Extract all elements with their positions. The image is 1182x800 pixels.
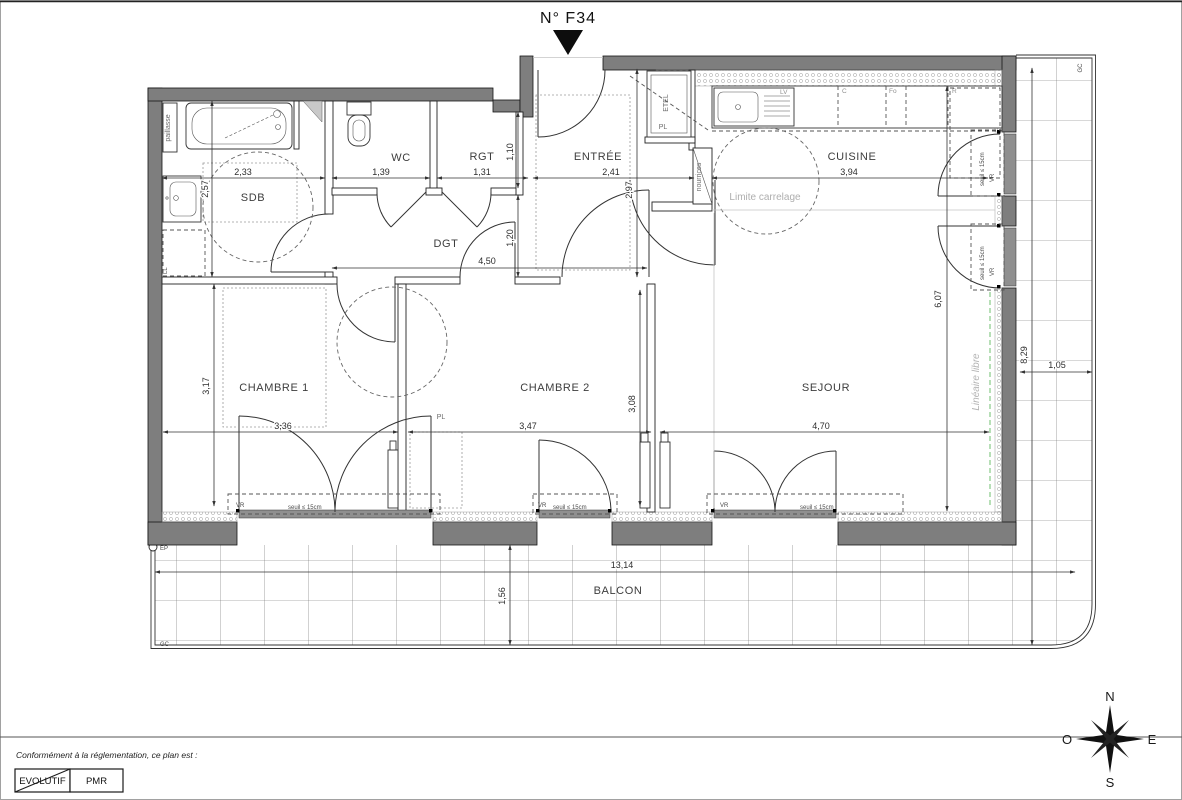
plan-title: N° F34: [540, 10, 596, 27]
washing-machine-slot: LL: [163, 230, 205, 276]
room-label-dgt: DGT: [433, 238, 458, 250]
room-label-balcon: BALCON: [594, 585, 643, 597]
dim-entree-height: 2,97: [624, 181, 634, 199]
etel-closet: ETEL: [647, 71, 691, 137]
shower-corner: [303, 101, 322, 122]
room-label-rgt: RGT: [469, 151, 494, 163]
ll-label: LL: [163, 267, 169, 274]
kitchen-fo-label: Fo: [889, 88, 897, 95]
vr-label-sejour: VR: [720, 503, 729, 509]
dim-balcon-width: 13,14: [611, 560, 634, 570]
room-labels: SDB WC RGT ENTRÉE CUISINE DGT CHAMBRE 1 …: [239, 150, 876, 394]
kitchen-counter: LV C Fo R: [712, 86, 1002, 178]
entrance-marker-icon: [553, 30, 583, 55]
dim-dgt-width: 4,50: [478, 256, 496, 266]
room-label-chambre1: CHAMBRE 1: [239, 382, 309, 394]
vr-label-cuisine: VR: [990, 173, 996, 182]
vr-label-sejour-balcony: VR: [990, 267, 996, 276]
rgt-door: [442, 192, 491, 227]
sejour-entry-door: [562, 190, 649, 277]
pl-label-entree: PL: [659, 124, 668, 131]
limite-carrelage-label: Limite carrelage: [729, 192, 801, 203]
vr-label-ch2: VR: [538, 503, 547, 509]
paillasse-label: paillasse: [165, 114, 172, 141]
fixtures: paillasse LL ETEL P: [163, 71, 1002, 508]
floor-plan-page: N° F34 EP GC GC BALCON: [0, 0, 1182, 800]
dim-sejour-width: 4,70: [812, 421, 830, 431]
dim-balcon-side-width: 1,05: [1048, 360, 1066, 370]
ep-label: EP: [160, 546, 168, 552]
compass-east-label: E: [1148, 732, 1157, 747]
radiators: [388, 433, 670, 508]
gc-label-bottom: GC: [160, 642, 170, 648]
compass-west-label: O: [1062, 732, 1072, 747]
room-label-cuisine: CUISINE: [828, 151, 877, 163]
seuil-label-cuisine: seuil ≤ 15cm: [980, 152, 986, 186]
legend-evolutif: EVOLUTIF: [19, 776, 66, 787]
room-label-wc: WC: [391, 152, 411, 164]
compass-rose: N S E O: [1062, 689, 1157, 790]
seuil-label-sejour-balcony: seuil ≤ 15cm: [980, 246, 986, 280]
seuil-label-ch2: seuil ≤ 15cm: [553, 505, 587, 511]
bathtub: [186, 103, 292, 149]
compass-north-label: N: [1105, 689, 1114, 704]
legend-pmr: PMR: [86, 776, 107, 787]
dim-dgt-height: 1,20: [505, 229, 515, 247]
vr-label-ch1: VR: [236, 503, 245, 509]
kitchen-lv-label: LV: [780, 89, 788, 96]
wc-door: [377, 192, 426, 227]
dim-chambre1-height: 3,17: [201, 377, 211, 395]
zones: PL Limite carrelage Linéaire libre VR se…: [203, 76, 1004, 514]
legend-intro: Conformément à la réglementation, ce pla…: [16, 750, 198, 760]
pmr-circle-cuisine: [713, 128, 819, 234]
dim-rgt-height: 1,10: [505, 143, 515, 161]
dim-sejour-height: 6,07: [933, 290, 943, 308]
room-label-sejour: SEJOUR: [802, 382, 850, 394]
dim-cuisine-width: 3,94: [840, 167, 858, 177]
dim-wc-width: 1,39: [372, 167, 390, 177]
gc-label-top: GC: [1078, 63, 1084, 73]
etel-label: ETEL: [663, 94, 670, 112]
toilet: [347, 102, 371, 146]
dim-balcon-depth: 1,56: [497, 587, 507, 605]
dim-chambre2-height: 3,08: [627, 395, 637, 413]
kitchen-c-label: C: [842, 88, 847, 95]
title-block: N° F34: [540, 10, 596, 55]
legend: Conformément à la réglementation, ce pla…: [15, 750, 198, 792]
kitchen-r-label: R: [952, 88, 957, 95]
paillasse-counter: paillasse: [163, 103, 177, 152]
dim-chambre2-width: 3,47: [519, 421, 537, 431]
seuil-label-sejour: seuil ≤ 15cm: [800, 505, 834, 511]
pmr-circle-sdb: [203, 152, 313, 262]
dim-sdb-height: 2,57: [200, 180, 210, 198]
entry-door: [538, 70, 605, 137]
room-label-entree: ENTRÉE: [574, 150, 622, 163]
seuil-label-ch1: seuil ≤ 15cm: [288, 505, 322, 511]
compass-south-label: S: [1106, 775, 1115, 790]
dim-rgt-width: 1,31: [473, 167, 491, 177]
dim-balcon-side-height: 8,29: [1019, 346, 1029, 364]
washbasin: [163, 176, 201, 222]
lineaire-libre-label: Linéaire libre: [971, 353, 982, 411]
room-label-chambre2: CHAMBRE 2: [520, 382, 590, 394]
dim-sdb-width: 2,33: [234, 167, 252, 177]
dim-entree-width: 2,41: [602, 167, 620, 177]
floor-plan-drawing: N° F34 EP GC GC BALCON: [0, 0, 1182, 800]
pl-label-chambre: PL: [437, 414, 446, 421]
nourrices-label: nourrices: [696, 162, 703, 191]
dim-chambre1-width: 3,36: [274, 421, 292, 431]
room-label-sdb: SDB: [241, 192, 265, 204]
